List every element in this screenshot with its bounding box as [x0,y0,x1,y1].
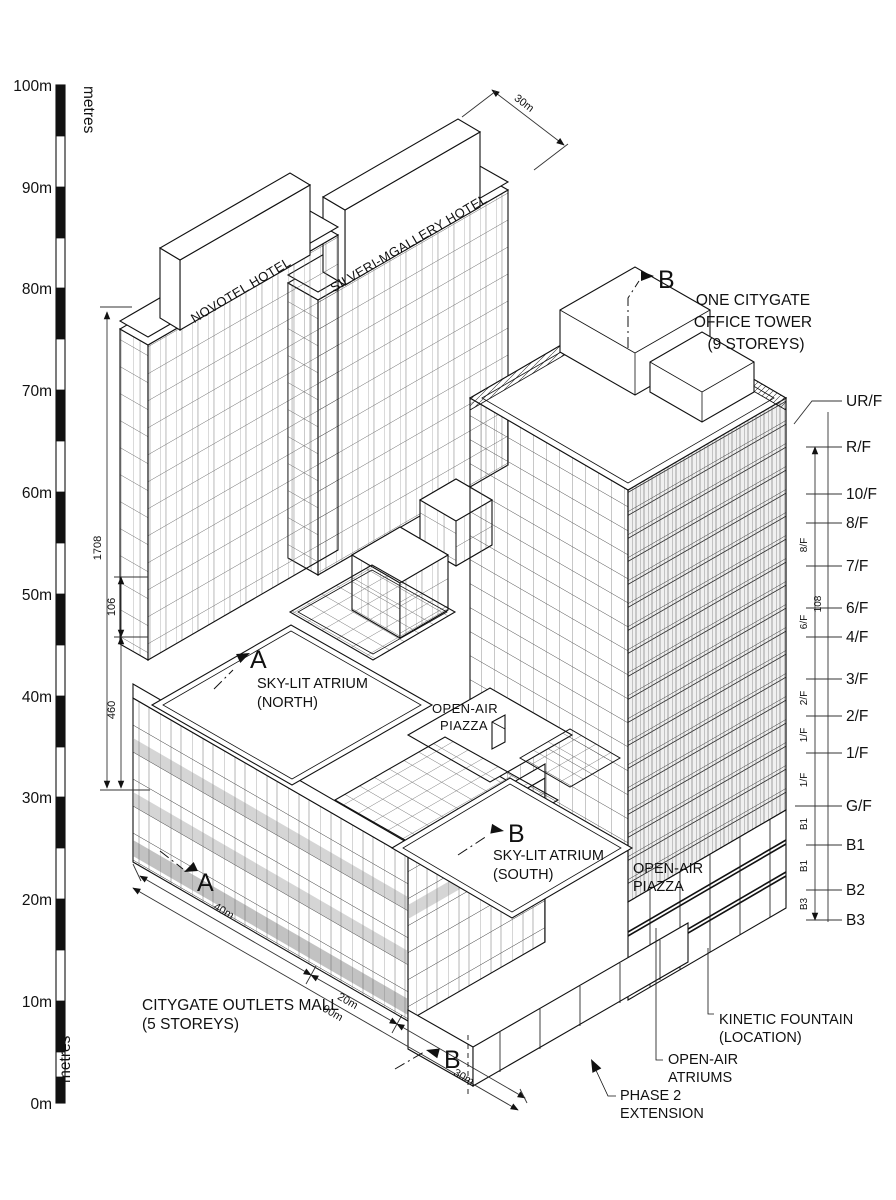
section-b-top-label: B [658,266,675,294]
section-b-bottom-line [395,1052,424,1069]
floor-ticks [795,447,842,920]
mall-label-2: (5 STOREYS) [142,1016,239,1033]
urf-leader [794,401,842,424]
office-tower-label: ONE CITYGATE OFFICE TOWER (9 STOREYS) [694,292,812,353]
floor-2f: 2/F [846,708,868,725]
kinetic-2: (LOCATION) [719,1030,802,1046]
floor-urf: UR/F [846,393,882,410]
office-label-1: ONE CITYGATE [696,292,810,309]
novotel-tower: NOVOTEL HOTEL [120,173,338,660]
atrium-south-1: SKY-LIT ATRIUM [493,848,604,864]
piazza-east-2: PIAZZA [633,879,684,895]
office-label-3: (9 STOREYS) [707,336,804,353]
floor-8f: 8/F [846,515,868,532]
left-dim-lower-label: 460 [106,701,118,719]
kinetic-1: KINETIC FOUNTAIN [719,1012,853,1028]
floor-4f: 4/F [846,629,868,646]
floor-7f: 7/F [846,558,868,575]
atriums-1: OPEN-AIR [668,1052,738,1068]
seg-b3: B3 [799,897,810,910]
section-b-bottom-label: B [444,1046,461,1074]
diagram-canvas: 100m 90m 80m 70m 60m 50m 40m 30m 20m 10m… [0,0,896,1200]
scale-tick-10m: 10m [22,994,52,1011]
floor-10f: 10/F [846,486,877,503]
novotel-roofbox-sw [160,248,180,330]
phase2-arrow [587,1057,602,1073]
scale-bar: 100m 90m 80m 70m 60m 50m 40m 30m 20m 10m… [13,78,97,1113]
atriums-2: ATRIUMS [668,1070,732,1086]
floor-segment-labels: 8/F 108 6/F 2/F 1/F 1/F B1 B1 B3 [799,538,824,910]
scale-tick-40m: 40m [22,689,52,706]
axonometric-diagram: 100m 90m 80m 70m 60m 50m 40m 30m 20m 10m… [0,0,896,1200]
phase2-label: PHASE 2 EXTENSION [620,1088,704,1122]
seg-1f-b: 1/F [799,773,810,787]
scale-tick-0m: 0m [30,1096,52,1113]
mall-label: CITYGATE OUTLETS MALL (5 STOREYS) [142,997,339,1033]
scale-tick-90m: 90m [22,180,52,197]
section-a-top-label: A [250,646,267,674]
atrium-north-2: (NORTH) [257,695,318,711]
seg-2f: 2/F [799,691,810,705]
section-b-mid-label: B [508,820,525,848]
scale-bar-labels: 100m 90m 80m 70m 60m 50m 40m 30m 20m 10m… [13,78,52,1113]
scale-tick-50m: 50m [22,587,52,604]
floor-3f: 3/F [846,671,868,688]
section-a-bottom-label: A [197,869,214,897]
mall-label-1: CITYGATE OUTLETS MALL [142,997,339,1014]
phase2-2: EXTENSION [620,1106,704,1122]
scale-tick-100m: 100m [13,78,52,95]
scale-unit-top: metres [80,86,97,134]
kinetic-label: KINETIC FOUNTAIN (LOCATION) [719,1012,853,1046]
phase2-1: PHASE 2 [620,1088,681,1104]
seg-b1-b: B1 [799,859,810,872]
atrium-north-1: SKY-LIT ATRIUM [257,676,368,692]
seg-108: 108 [813,595,824,612]
floor-rf: R/F [846,439,871,456]
scale-unit-bottom: metres [57,1035,74,1083]
floor-b2: B2 [846,882,865,899]
seg-b1-a: B1 [799,817,810,830]
floor-6f: 6/F [846,600,868,617]
floor-gf: G/F [846,798,872,815]
piazza-center-1: OPEN-AIR [432,701,498,716]
seg-8f: 8/F [799,538,810,552]
scale-tick-70m: 70m [22,383,52,400]
scale-tick-20m: 20m [22,892,52,909]
floor-labels: UR/F R/F 10/F 8/F 7/F 6/F 4/F 3/F 2/F 1/… [846,393,882,929]
floor-b1: B1 [846,837,865,854]
seg-6f: 6/F [799,615,810,629]
piazza-center-2: PIAZZA [440,718,488,733]
floor-levels: UR/F R/F 10/F 8/F 7/F 6/F 4/F 3/F 2/F 1/… [794,393,882,929]
piazza-east-1: OPEN-AIR [633,861,703,877]
phase2-leader [594,1066,616,1096]
seg-1f-a: 1/F [799,728,810,742]
kinetic-leader [708,948,714,1014]
atrium-south-2: (SOUTH) [493,867,553,883]
scale-tick-30m: 30m [22,790,52,807]
left-dim-overall-label: 1708 [92,536,104,560]
floor-1f: 1/F [846,745,868,762]
office-label-2: OFFICE TOWER [694,314,812,331]
floor-b3: B3 [846,912,865,929]
top-dim-label: 30m [512,92,536,114]
scale-tick-80m: 80m [22,281,52,298]
novotel-sw-face [120,329,148,660]
left-dim-upper-label: 106 [106,598,118,616]
scale-tick-60m: 60m [22,485,52,502]
atriums-label: OPEN-AIR ATRIUMS [668,1052,738,1086]
